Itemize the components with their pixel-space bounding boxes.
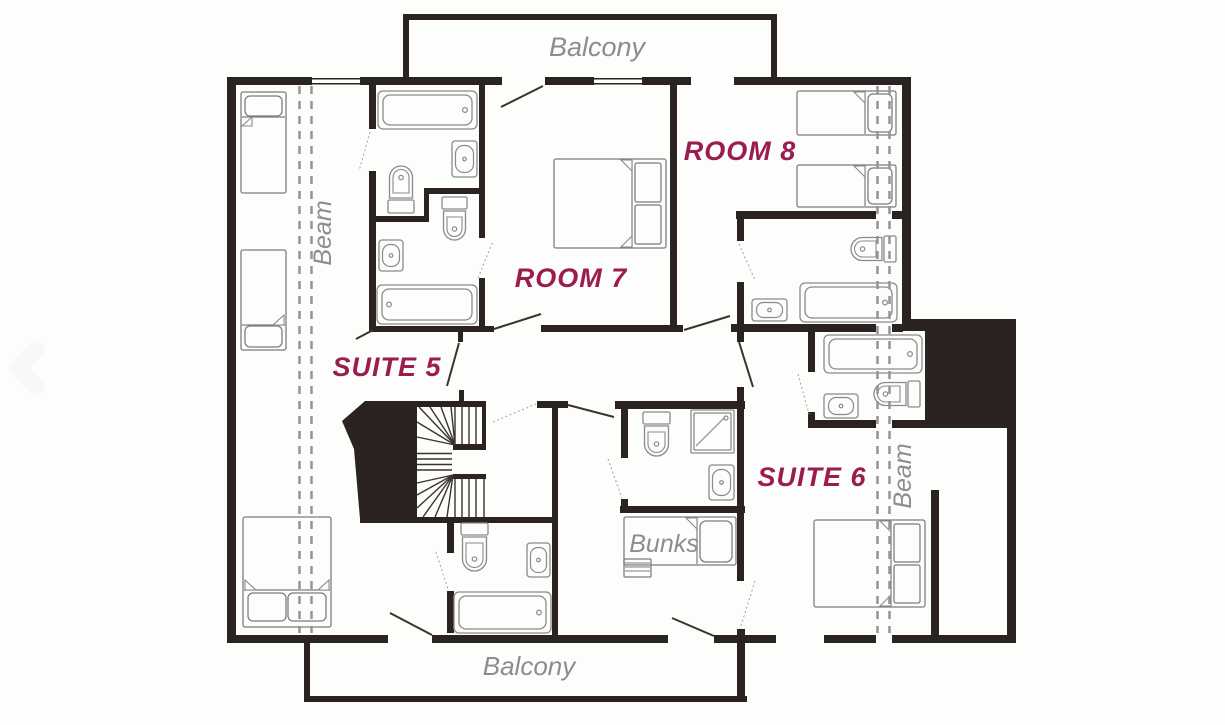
- svg-text:SUITE 5: SUITE 5: [332, 352, 441, 382]
- svg-text:Balcony: Balcony: [549, 32, 647, 62]
- svg-text:SUITE 6: SUITE 6: [757, 462, 866, 492]
- svg-text:Balcony: Balcony: [483, 651, 577, 681]
- svg-text:ROOM 7: ROOM 7: [515, 263, 628, 293]
- svg-text:ROOM 8: ROOM 8: [684, 136, 797, 166]
- svg-text:Beam: Beam: [889, 443, 917, 508]
- svg-text:Bunks: Bunks: [629, 530, 698, 558]
- svg-text:Beam: Beam: [309, 200, 337, 265]
